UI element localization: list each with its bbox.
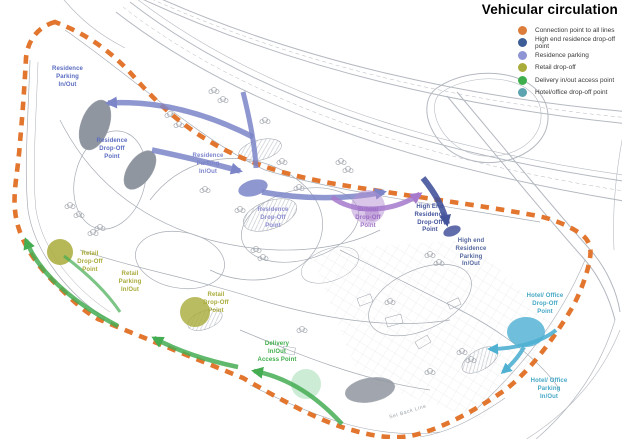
map-label-hotel-office-dropoff: Hotel/ Office Drop-Off Point — [516, 293, 574, 316]
map-label-retail-parking: Retail Parking In/Out — [108, 271, 152, 294]
map-label-hotel-office-parking: Hotel/ Office Parking In/Out — [520, 378, 578, 401]
map-label-residence-parking-mid: Residence Parking In/Out — [182, 153, 234, 176]
legend-item-residence-parking: Residence parking — [518, 49, 620, 62]
legend-item-retail-dropoff: Retail drop-off — [518, 62, 620, 75]
legend-item-connection: Connection point to all lines — [518, 24, 620, 37]
map-label-highend-parking: High end Residence Parking In/Out — [445, 238, 497, 269]
map-label-residence-dropoff-west: Residence Drop-Off Point — [86, 138, 138, 161]
legend-item-delivery-access: Delivery in/out access point — [518, 74, 620, 87]
map-label-retail-dropoff-mid: Retail Drop-Off Point — [192, 292, 240, 315]
map-label-retail-dropoff-west: Retail Drop-Off Point — [68, 251, 112, 274]
map-label-residence-dropoff-mid: Residence Drop-Off Point — [248, 207, 298, 230]
legend-item-highend-dropoff: High end residence drop-off point — [518, 37, 620, 50]
legend: Vehicular circulation Connection point t… — [470, 2, 620, 99]
legend-item-label: Connection point to all lines — [535, 27, 615, 34]
residence-parking-swatch — [518, 51, 527, 60]
legend-item-hotel-office-dropoff: Hotel/office drop-off point — [518, 87, 620, 100]
highend-dropoff-swatch — [518, 38, 527, 47]
legend-item-label: Delivery in/out access point — [535, 77, 614, 84]
legend-title: Vehicular circulation — [470, 2, 618, 17]
vehicular-circulation-diagram: Residence Parking In/Out Residence Drop-… — [0, 0, 622, 439]
hotel-office-dropoff-swatch — [518, 88, 527, 97]
delivery-access-swatch — [518, 76, 527, 85]
legend-item-label: Hotel/office drop-off point — [535, 89, 607, 96]
map-label-residence-parking-west: Residence Parking In/Out — [40, 66, 95, 89]
legend-item-label: Residence parking — [535, 52, 589, 59]
map-label-school-dropoff: School Drop-Off Point — [344, 207, 392, 230]
legend-items: Connection point to all lines High end r… — [470, 24, 620, 99]
map-label-highend-dropoff: High End Residence Drop-Off Point — [404, 204, 456, 235]
map-label-delivery-access: Delivery In/Out Access Point — [246, 341, 308, 364]
connection-point-swatch — [518, 26, 527, 35]
legend-item-label: High end residence drop-off point — [535, 36, 620, 50]
retail-dropoff-swatch — [518, 63, 527, 72]
legend-item-label: Retail drop-off — [535, 64, 576, 71]
